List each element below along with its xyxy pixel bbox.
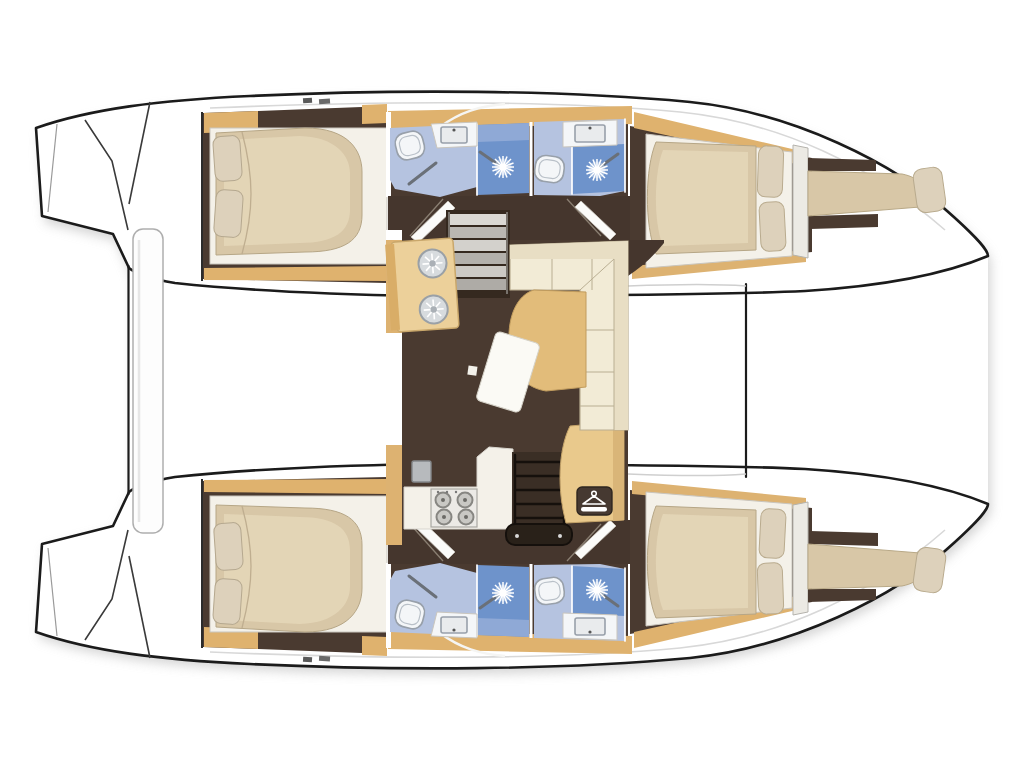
wardrobe-unit: [560, 422, 624, 523]
floor-plan-canvas: [0, 0, 1013, 759]
cockpit-bench: [133, 229, 163, 533]
floor-fitting: [467, 365, 477, 375]
stove-knob: [446, 491, 448, 493]
wardrobe-side: [613, 423, 624, 521]
stove-knob: [455, 491, 457, 493]
hanger-icon: [577, 487, 612, 515]
galley-sink-unit: [385, 238, 459, 333]
saloon-aft-wall-trim: [386, 445, 402, 545]
sink-basin-icon: [419, 295, 449, 325]
stove-knob: [437, 491, 439, 493]
oven-appliance: [412, 461, 431, 482]
sink-basin-icon: [418, 248, 448, 278]
floor-plan-page: [0, 0, 1013, 759]
